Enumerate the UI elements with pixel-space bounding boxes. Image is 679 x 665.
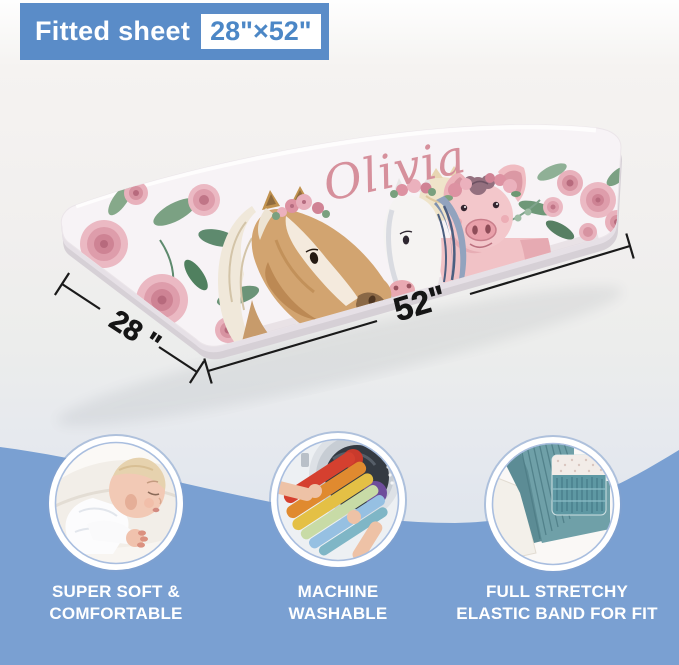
feature-label-elastic: FULL STRETCHY ELASTIC BAND FOR FIT [442, 581, 672, 625]
elastic-band-corner-photo [490, 441, 616, 567]
feature-circle-soft [49, 436, 183, 570]
feature-label-line: FULL STRETCHY [442, 581, 672, 603]
feature-label-line: ELASTIC BAND FOR FIT [442, 603, 672, 625]
product-type-badge: Fitted sheet 28"×52" [20, 3, 329, 60]
feature-label-line: WASHABLE [238, 603, 438, 625]
product-size-label: 28"×52" [201, 14, 320, 49]
washing-machine-laundry-photo [275, 437, 401, 563]
feature-label-line: SUPER SOFT & [16, 581, 216, 603]
feature-circle-washable [271, 433, 405, 567]
feature-circle-elastic [486, 437, 620, 571]
sleeping-baby-photo [53, 440, 179, 566]
feature-label-soft: SUPER SOFT & COMFORTABLE [16, 581, 216, 625]
fitted-sheet-scene: Olivia 28 " 52" [0, 0, 679, 440]
feature-label-washable: MACHINE WASHABLE [238, 581, 438, 625]
feature-label-line: MACHINE [238, 581, 438, 603]
feature-label-line: COMFORTABLE [16, 603, 216, 625]
product-image: Olivia 28 " 52" [0, 0, 679, 665]
product-type-label: Fitted sheet [35, 16, 190, 47]
